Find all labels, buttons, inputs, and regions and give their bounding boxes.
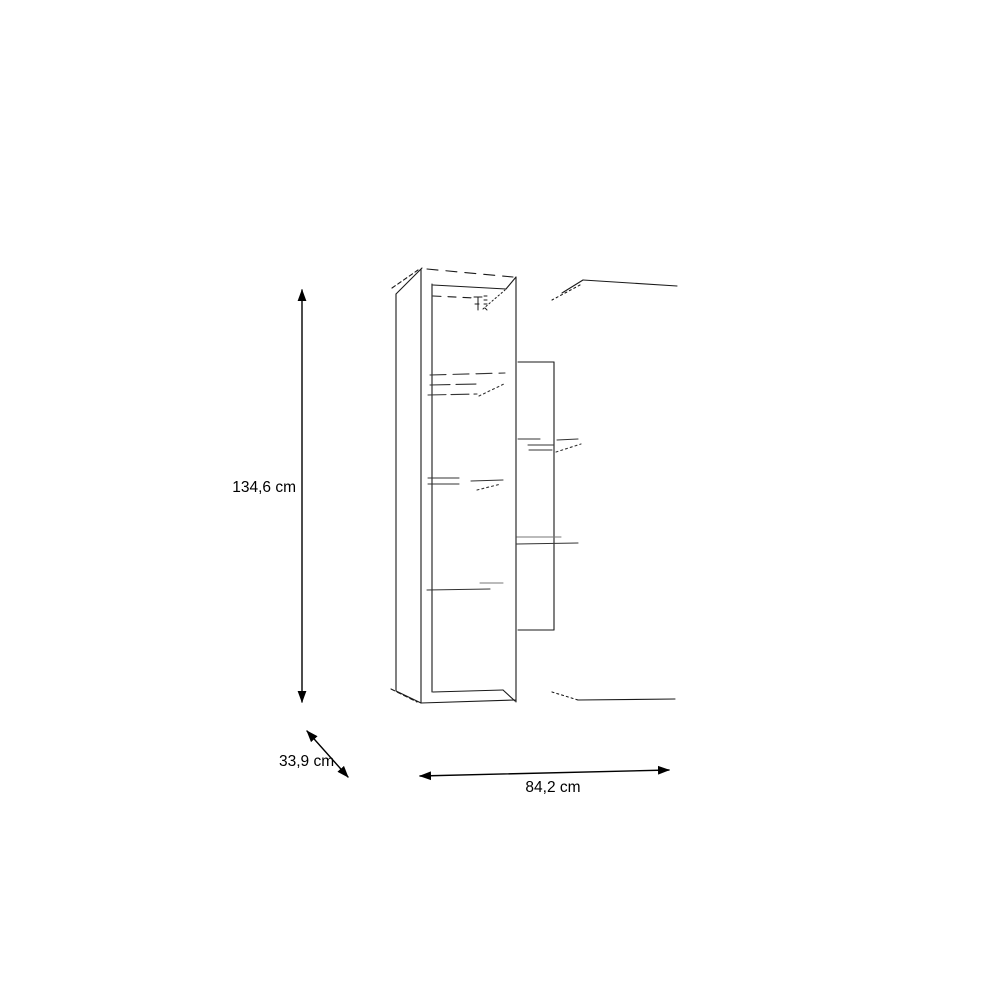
dimension-arrows bbox=[302, 290, 669, 777]
cabinet-top-back-edge bbox=[427, 269, 513, 277]
cabinet-shelf-middle bbox=[428, 478, 503, 490]
wall-panel-bottom-right bbox=[552, 692, 675, 700]
shelf-depth-dotted-line bbox=[556, 444, 581, 452]
shelf-depth-dotted-line bbox=[477, 484, 501, 490]
shelf-line bbox=[430, 373, 505, 375]
width-dimension-label: 84,2 cm bbox=[525, 779, 580, 796]
cabinet-top-left-slant bbox=[396, 268, 422, 294]
shelf-line bbox=[471, 480, 503, 481]
shelf-line bbox=[430, 384, 478, 385]
shelf-line bbox=[517, 543, 578, 544]
cabinet-shelf-bottom bbox=[427, 583, 503, 590]
shelf-depth-dotted-line bbox=[479, 383, 506, 396]
shelf-line bbox=[557, 439, 578, 440]
wall-shelf-unit bbox=[517, 362, 581, 630]
cabinet-shelves bbox=[427, 373, 506, 590]
cabinet-bottom-right-bevel bbox=[503, 690, 515, 701]
cabinet-interior-top-edge bbox=[433, 296, 476, 298]
height-dimension-label: 134,6 cm bbox=[232, 479, 296, 496]
wall-shelf-lower bbox=[517, 537, 578, 544]
mounting-detail-glyph-tail bbox=[485, 308, 487, 310]
panel-dotted-edge bbox=[552, 692, 578, 700]
shelf-line bbox=[428, 394, 477, 395]
cabinet-shelf-top bbox=[428, 373, 506, 396]
panel-edge bbox=[583, 280, 677, 286]
mounting-detail-glyphs bbox=[484, 296, 487, 304]
furniture-dimension-diagram: 134,6 cm 33,9 cm 84,2 cm bbox=[0, 0, 1000, 1000]
panel-dotted-edge bbox=[552, 285, 580, 300]
panel-edge bbox=[562, 280, 583, 293]
cabinet-top-right-bevel bbox=[506, 277, 516, 289]
cabinet-bottom-front-edge bbox=[421, 700, 515, 703]
cabinet-bottom-left-hatch bbox=[391, 689, 417, 702]
wall-shelf-middle bbox=[518, 439, 581, 452]
diagram-canvas: 134,6 cm 33,9 cm 84,2 cm bbox=[0, 0, 1000, 1000]
cabinet-interior-bottom-edge bbox=[433, 690, 503, 692]
panel-edge bbox=[578, 699, 675, 700]
depth-dimension-label: 33,9 cm bbox=[279, 753, 334, 770]
mounting-detail-mark bbox=[474, 290, 505, 310]
width-dimension-arrow bbox=[420, 770, 669, 776]
wall-panel-top-right bbox=[552, 280, 677, 300]
cabinet-top-front-edge bbox=[433, 285, 506, 289]
shelf-line bbox=[427, 589, 490, 590]
